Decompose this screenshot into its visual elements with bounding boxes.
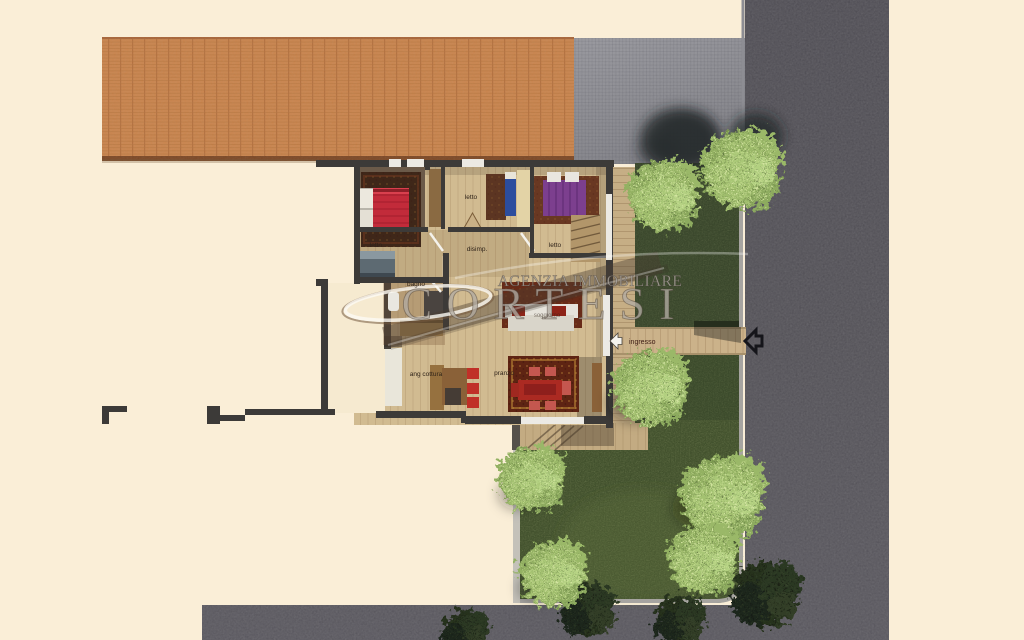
svg-text:letto: letto	[465, 194, 478, 201]
svg-text:bagno: bagno	[407, 281, 425, 288]
svg-text:ang cottura: ang cottura	[410, 371, 443, 378]
svg-text:disimp.: disimp.	[467, 246, 488, 253]
svg-text:letto: letto	[370, 242, 383, 249]
svg-text:CORTESI: CORTESI	[402, 278, 689, 329]
svg-text:pranzo: pranzo	[494, 370, 514, 377]
svg-text:letto: letto	[549, 242, 562, 249]
svg-text:ingresso: ingresso	[629, 339, 656, 346]
svg-text:soggiorno: soggiorno	[534, 313, 561, 319]
